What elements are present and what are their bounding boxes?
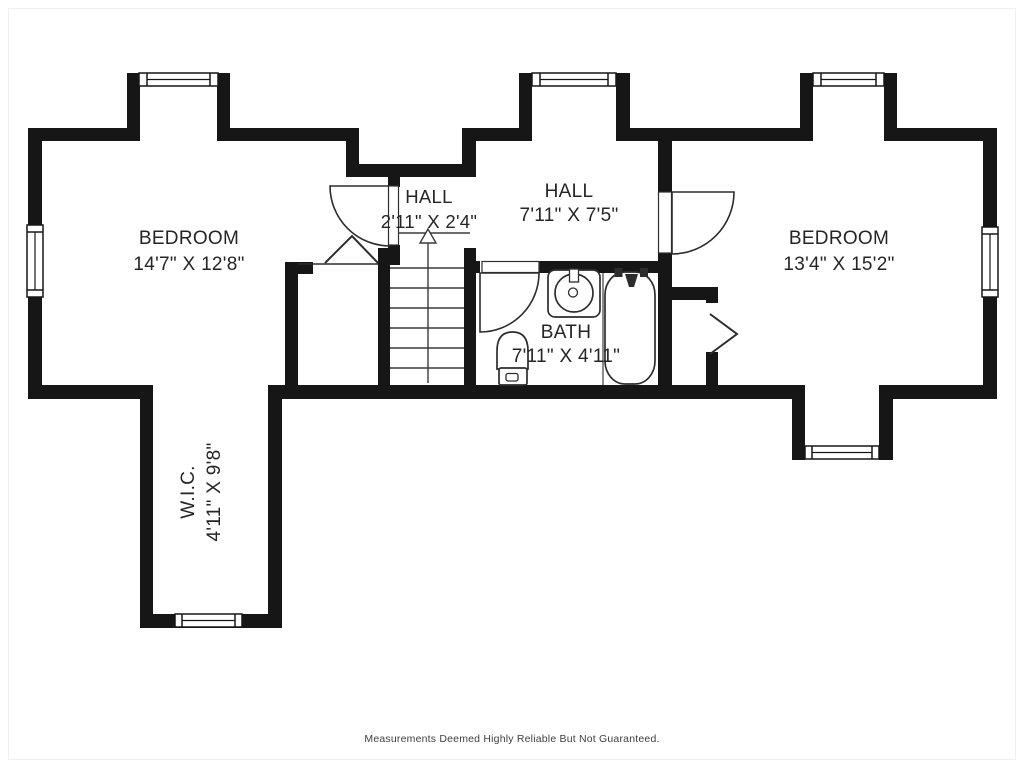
room-name: BATH [466, 321, 666, 345]
window-left-wall [27, 225, 43, 297]
floor-plan-page: { "rooms": [ { "key": "bedroom_left", "n… [0, 0, 1024, 768]
room-name: W.I.C. [176, 417, 202, 567]
tub-handle-icon [615, 268, 623, 277]
room-dimensions: 14'7" X 12'8" [89, 252, 289, 278]
staircase [390, 229, 470, 383]
window-bottom-right [805, 446, 879, 459]
window-top-center [532, 73, 616, 86]
room-label-bedroom-left: BEDROOM 14'7" X 12'8" [89, 226, 289, 278]
room-dimensions: 4'11" X 9'8" [202, 417, 228, 567]
disclaimer-text: Measurements Deemed Highly Reliable But … [0, 733, 1024, 745]
room-name: BEDROOM [739, 226, 939, 252]
door-hall-main-to-bedroom-right [659, 192, 735, 254]
window-top-left [139, 73, 218, 86]
room-name: BEDROOM [89, 226, 289, 252]
window-right-wall [982, 227, 998, 297]
room-label-bedroom-right: BEDROOM 13'4" X 15'2" [739, 226, 939, 278]
tub-handle-icon [640, 268, 648, 277]
room-label-hall-main: HALL 7'11" X 7'5" [469, 180, 669, 228]
room-name: HALL [469, 180, 669, 204]
bifold-door-closet-right [710, 314, 737, 354]
sink-icon [548, 269, 600, 317]
room-dimensions: 7'11" X 7'5" [469, 204, 669, 228]
window-wic [175, 614, 242, 627]
window-top-right [813, 73, 884, 86]
room-dimensions: 7'11" X 4'11" [466, 345, 666, 369]
room-label-bath: BATH 7'11" X 4'11" [466, 321, 666, 369]
room-label-wic: W.I.C. 4'11" X 9'8" [176, 417, 228, 567]
room-dimensions: 13'4" X 15'2" [739, 252, 939, 278]
floor-plan-drawing [0, 0, 1024, 768]
